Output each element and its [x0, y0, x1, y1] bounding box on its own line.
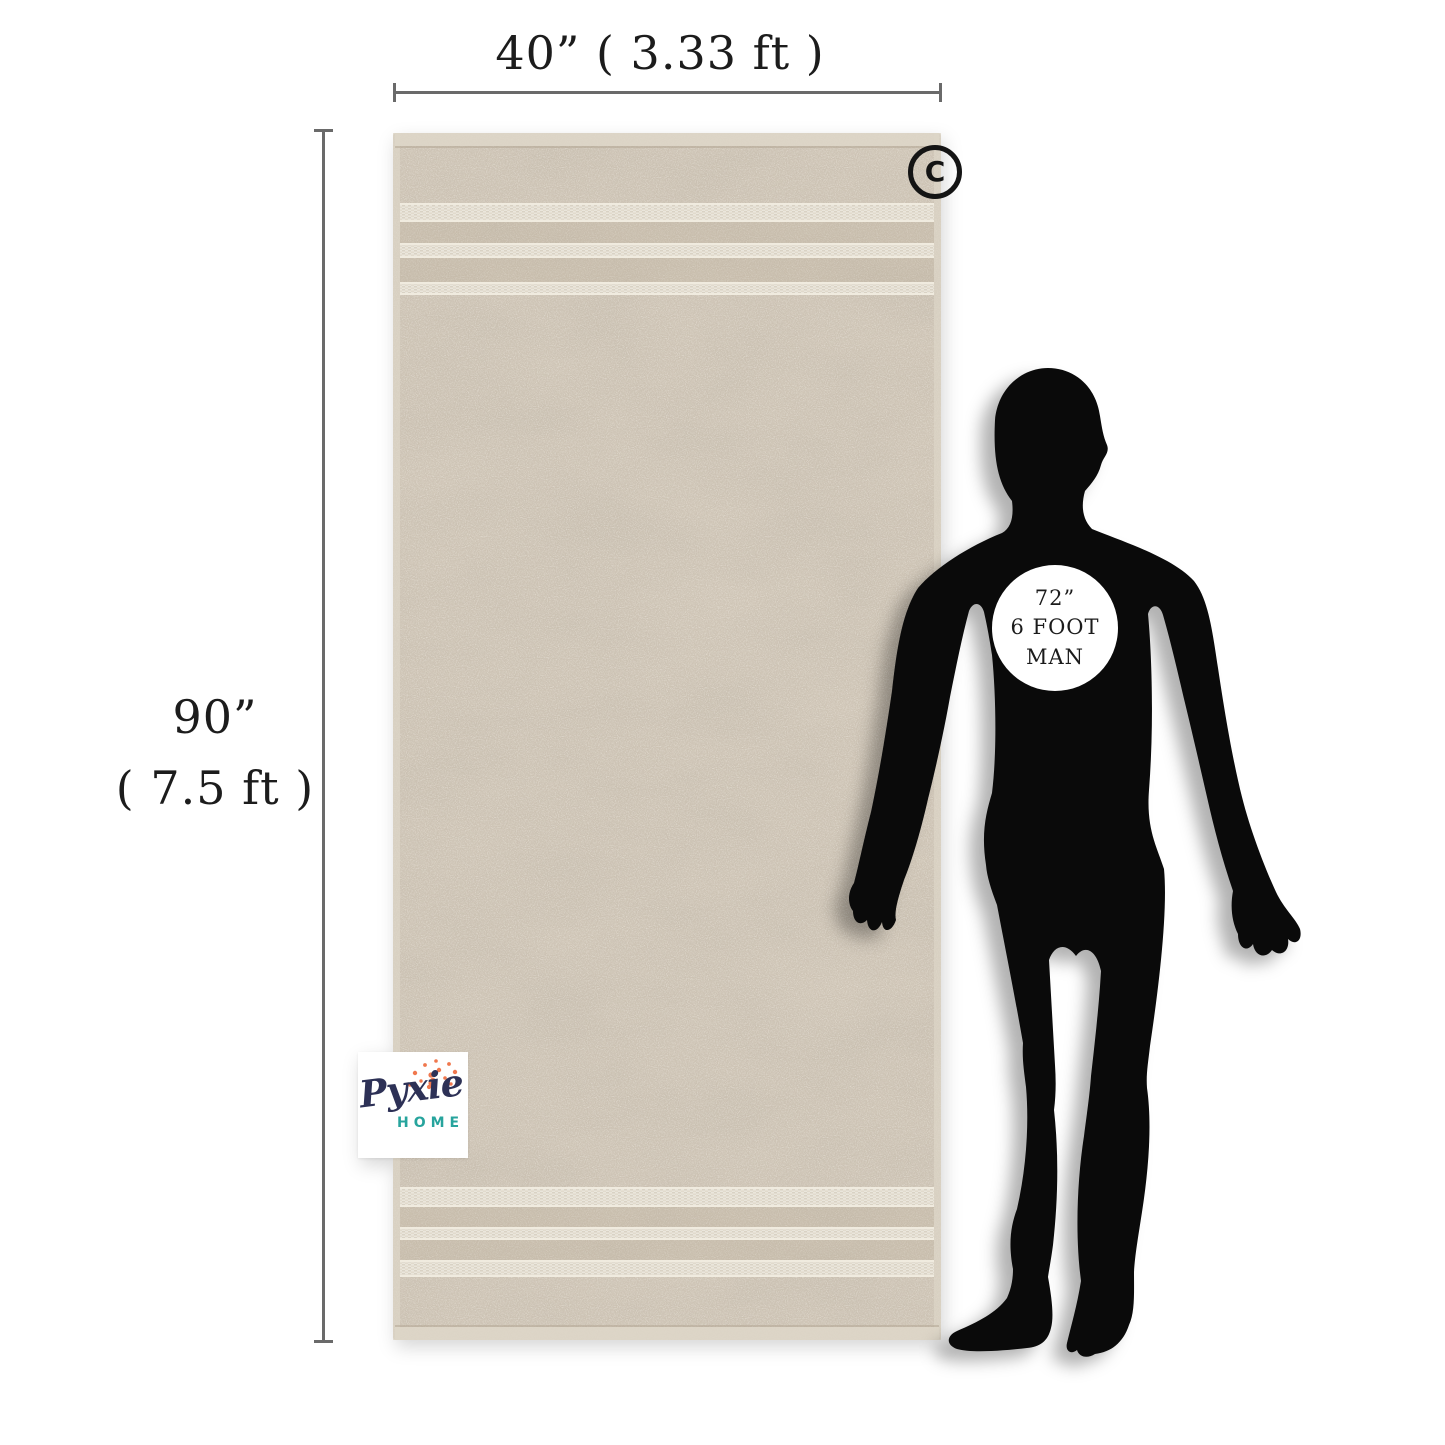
height-dimension-tick-bottom: [314, 1340, 333, 1343]
width-dimension-tick-right: [939, 83, 942, 102]
brand-watermark: Pyxie HOME: [358, 1052, 468, 1158]
towel-border-top: [400, 203, 934, 295]
copyright-icon: C: [908, 145, 962, 199]
man-silhouette-path: [849, 368, 1301, 1357]
height-badge-line2: 6 FOOT: [1010, 613, 1099, 642]
height-badge-line1: 72”: [1035, 584, 1075, 613]
height-dimension-inches: 90”: [75, 682, 355, 753]
height-badge: 72” 6 FOOT MAN: [992, 565, 1118, 691]
height-dimension-tick-top: [314, 129, 333, 132]
brand-sub-name: HOME: [397, 1115, 464, 1131]
height-badge-line3: MAN: [1026, 643, 1084, 672]
width-dimension-tick-left: [393, 83, 396, 102]
width-dimension-line: [393, 91, 942, 94]
copyright-letter: C: [925, 158, 946, 186]
brand-name: Pyxie: [357, 1060, 470, 1117]
height-dimension-label: 90” ( 7.5 ft ): [75, 682, 355, 825]
size-comparison-diagram: 40” ( 3.33 ft ) 90” ( 7.5 ft ): [0, 0, 1445, 1445]
width-dimension-label: 40” ( 3.33 ft ): [380, 26, 940, 80]
height-dimension-feet: ( 7.5 ft ): [75, 753, 355, 824]
man-silhouette-icon: [843, 364, 1305, 1362]
